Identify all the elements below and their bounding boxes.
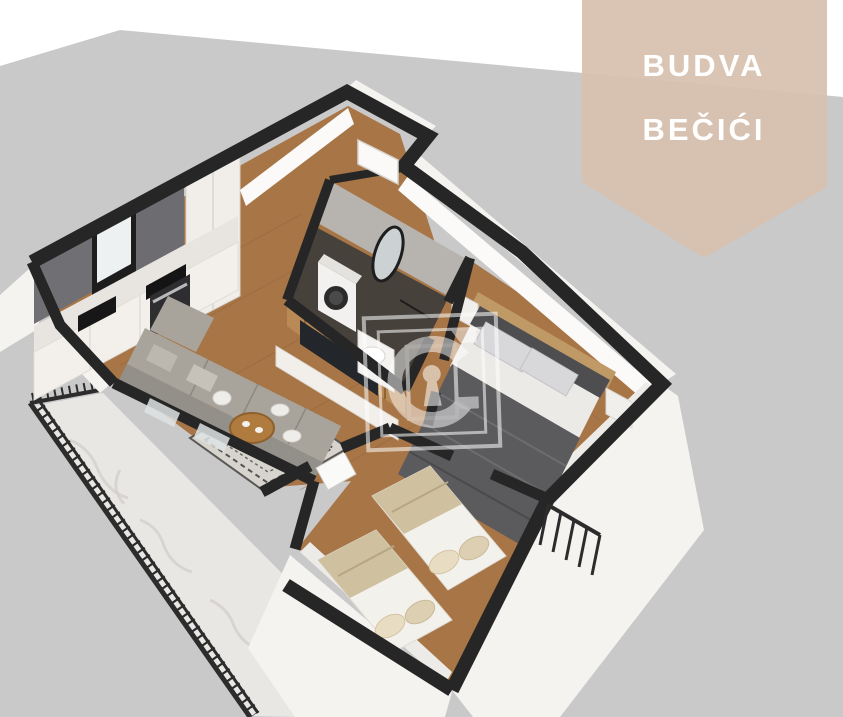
table-decor: [255, 427, 263, 433]
dining-chair: [271, 404, 289, 416]
floorplan-scene: BUDVA BEČIĆI: [0, 0, 843, 717]
banner-line1: BUDVA: [643, 48, 766, 83]
table-decor: [242, 421, 250, 427]
floorplan-render: BUDVA BEČIĆI: [0, 0, 843, 717]
banner-line2: BEČIĆI: [642, 111, 765, 147]
side-table: [213, 391, 231, 405]
dining-chair: [283, 430, 301, 442]
washing-machine-door-glass: [329, 291, 343, 305]
